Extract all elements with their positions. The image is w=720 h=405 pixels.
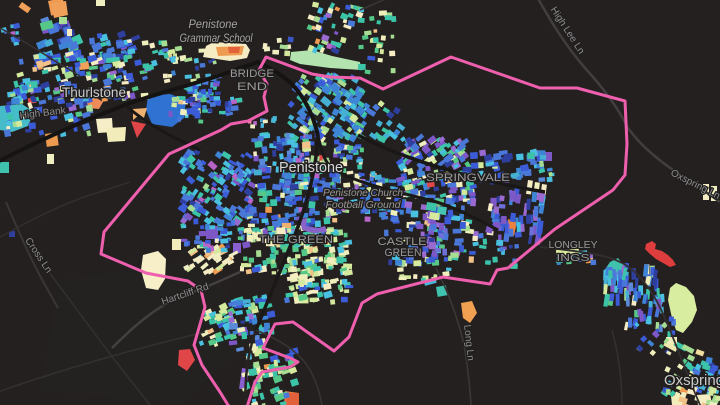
svg-text:LONGLEY: LONGLEY [549, 239, 598, 251]
svg-text:Thurlstone: Thurlstone [62, 85, 126, 100]
svg-text:Penistone Church: Penistone Church [323, 187, 403, 199]
svg-text:Oxspring: Oxspring [664, 372, 720, 389]
svg-text:Football Ground: Football Ground [326, 199, 402, 211]
svg-text:Grammar School: Grammar School [180, 33, 253, 45]
svg-text:THE GREEN: THE GREEN [259, 234, 333, 246]
svg-text:SPRINGVALE: SPRINGVALE [426, 172, 510, 184]
svg-text:Penistone: Penistone [279, 160, 343, 176]
svg-text:BRIDGE: BRIDGE [230, 68, 274, 80]
svg-text:END: END [237, 81, 267, 93]
svg-text:GREEN: GREEN [385, 247, 422, 259]
svg-text:Penistone: Penistone [189, 19, 238, 31]
svg-text:INGS: INGS [557, 252, 590, 264]
